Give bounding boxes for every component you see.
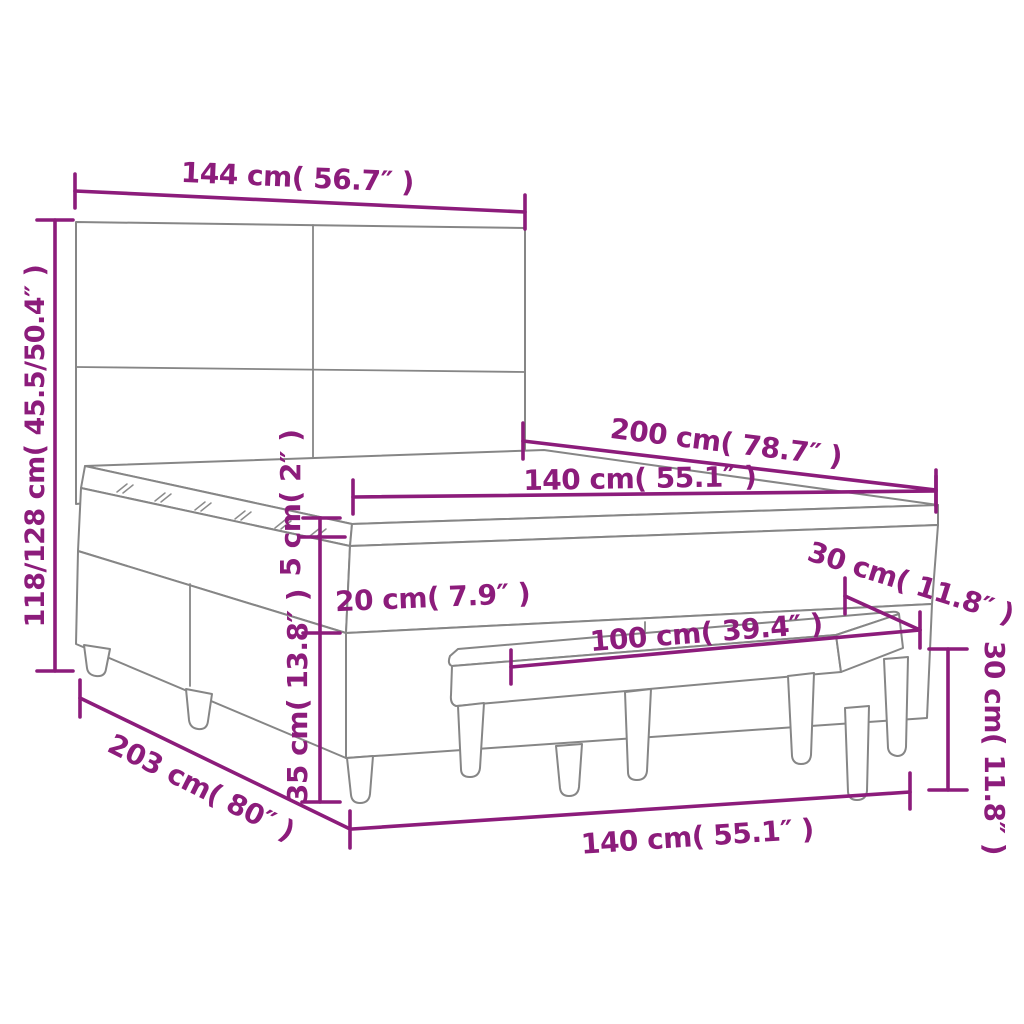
bench-leg	[788, 673, 814, 764]
bed-leg	[347, 756, 373, 803]
dim-headboard-width: 144 cm( 56.7″ )	[75, 156, 525, 229]
diagram-canvas: 144 cm( 56.7″ ) 118/128 cm( 45.5/50.4″ )…	[0, 0, 1024, 1024]
bed-leg	[556, 744, 582, 796]
dim-bench-height: 30 cm( 11.8″ )	[929, 641, 1011, 855]
dimension-label: 203 cm( 80″ )	[103, 727, 300, 848]
bed-leg	[186, 689, 212, 729]
dim-bed-width-floor: 140 cm( 55.1″ )	[352, 773, 910, 861]
bed-leg	[845, 706, 869, 800]
bench-leg	[625, 689, 651, 780]
bench-leg	[458, 703, 484, 777]
dimension-label: 30 cm( 11.8″ )	[978, 641, 1011, 855]
dimension-label: 144 cm( 56.7″ )	[180, 156, 414, 199]
bed-leg	[84, 645, 110, 676]
bench-leg	[884, 657, 908, 756]
dimension-label: 140 cm( 55.1″ )	[523, 460, 757, 497]
dimension-line	[75, 191, 525, 212]
dimension-label: 140 cm( 55.1″ )	[580, 812, 815, 860]
dimension-label: 35 cm( 13.8″ )	[281, 589, 314, 803]
dimension-label: 118/128 cm( 45.5/50.4″ )	[20, 265, 51, 628]
dimension-label: 5 cm( 2″ )	[274, 429, 307, 576]
dim-bed-height: 118/128 cm( 45.5/50.4″ )	[20, 220, 73, 671]
